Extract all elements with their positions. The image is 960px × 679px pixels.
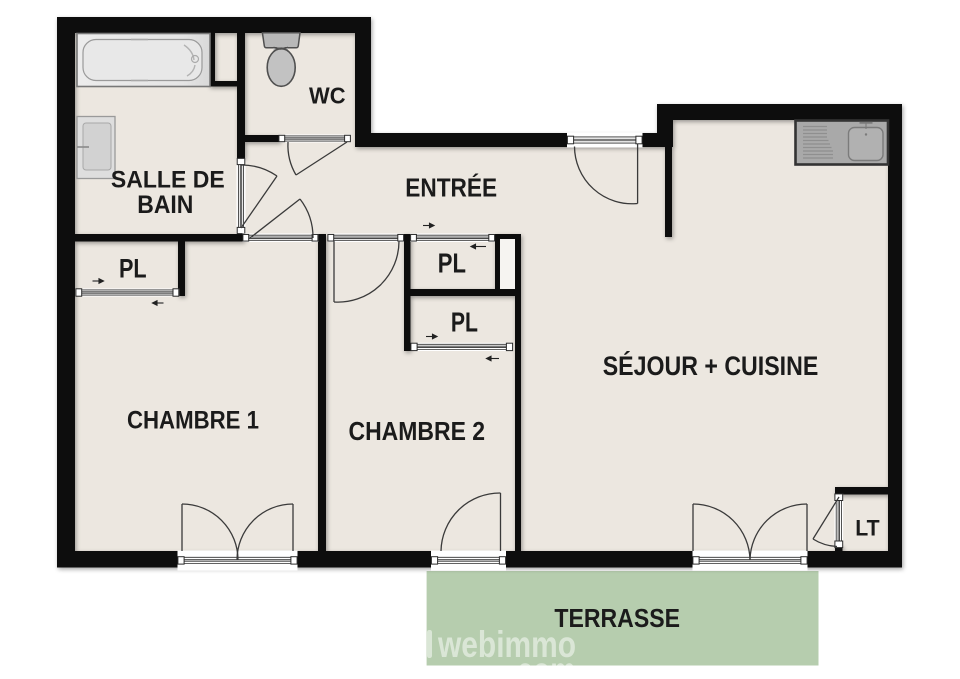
svg-text:PL: PL [119,252,147,283]
svg-text:PL: PL [451,306,478,337]
svg-text:CHAMBRE 2: CHAMBRE 2 [348,418,485,446]
svg-text:SÉJOUR + CUISINE: SÉJOUR + CUISINE [603,351,819,381]
svg-text:LT: LT [855,516,880,541]
svg-text:SALLE DE: SALLE DE [111,167,225,194]
svg-text:CHAMBRE 1: CHAMBRE 1 [127,407,259,435]
svg-text:com: com [517,650,576,679]
svg-text:ENTRÉE: ENTRÉE [405,173,497,203]
svg-text:BAIN: BAIN [137,191,193,219]
svg-text:WC: WC [309,82,346,108]
svg-text:PL: PL [438,248,466,279]
